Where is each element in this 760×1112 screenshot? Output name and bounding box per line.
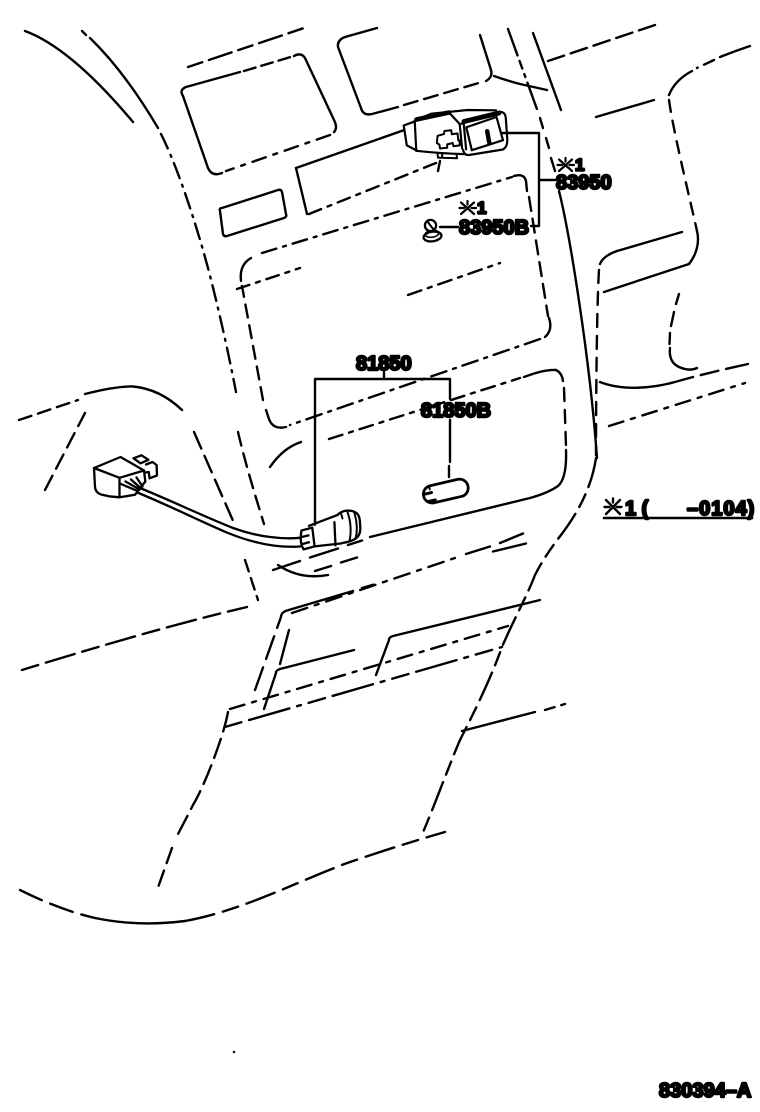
svg-text:1: 1	[477, 199, 486, 218]
svg-text:83950: 83950	[556, 172, 612, 194]
svg-text:830394–A: 830394–A	[659, 1080, 751, 1102]
svg-text:81850B: 81850B	[421, 400, 491, 422]
svg-text:83950B: 83950B	[459, 217, 529, 239]
